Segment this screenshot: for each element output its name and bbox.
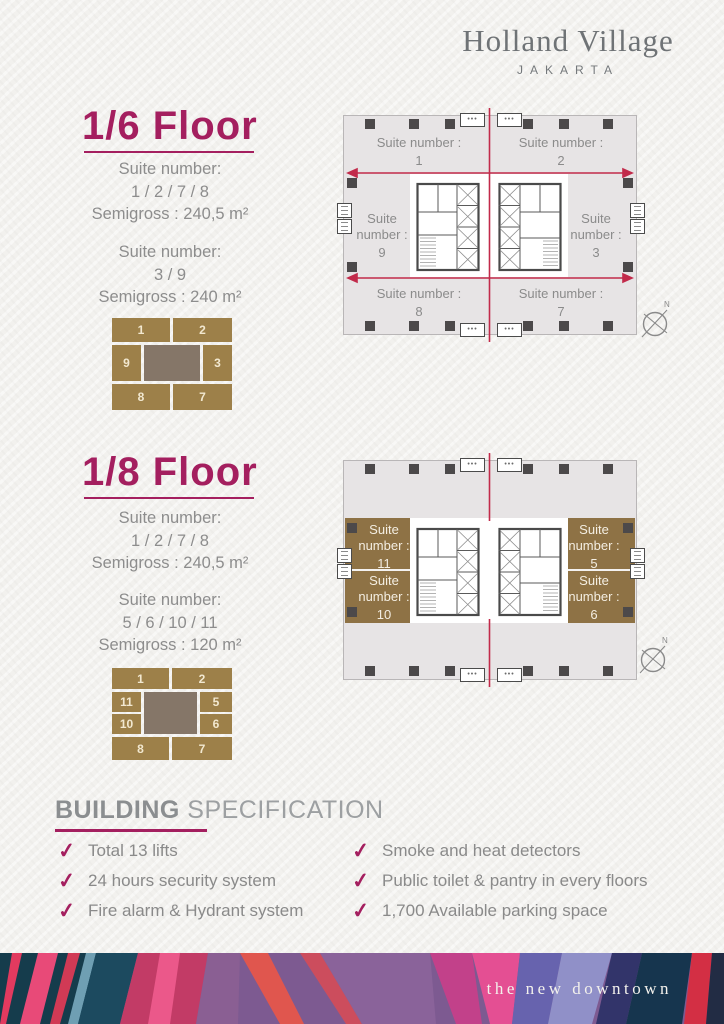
spec-item: Public toilet & pantry in every floors	[352, 871, 682, 901]
check-icon	[57, 869, 89, 892]
spec-item: Smoke and heat detectors	[352, 841, 682, 871]
spec-item: 1,700 Available parking space	[352, 901, 682, 931]
svg-text:N: N	[662, 636, 668, 645]
check-icon	[351, 899, 383, 922]
stack-cell: 1	[112, 318, 170, 342]
compass-north-icon: N	[634, 634, 674, 680]
suite-label-7: Suite number : 7	[496, 286, 626, 320]
floor-1-8-stack-diagram: 1 2 11 10 5 6 8 7	[112, 668, 232, 760]
footer-art-strip: the new downtown	[0, 953, 724, 1024]
suite-label: Suite number:	[50, 241, 290, 264]
brand-logo: Holland Village JAKARTA	[448, 24, 688, 77]
check-icon	[57, 899, 89, 922]
stack-cell: 8	[112, 737, 169, 760]
stack-core	[144, 345, 200, 381]
spec-item: 24 hours security system	[58, 871, 388, 901]
suite-label-11: Suite number : 11	[356, 522, 412, 572]
stack-cell: 10	[112, 714, 141, 734]
side-door-icon	[630, 564, 645, 579]
suite-label-1: Suite number : 1	[354, 135, 484, 169]
suite-label-6: Suite number : 6	[566, 573, 622, 623]
suite-semigross: Semigross : 240,5 m²	[50, 552, 290, 575]
suite-semigross: Semigross : 240 m²	[50, 286, 290, 309]
building-core-plan	[416, 526, 562, 618]
suite-label: Suite number:	[50, 589, 290, 612]
brand-city: JAKARTA	[448, 63, 688, 77]
floor-1-6-spec-1: Suite number: 1 / 2 / 7 / 8 Semigross : …	[50, 158, 290, 226]
suite-numbers: 1 / 2 / 7 / 8	[50, 530, 290, 553]
floor-1-8-title: 1/8 Floor	[50, 450, 322, 495]
stack-cell: 2	[173, 318, 232, 342]
brand-name: Holland Village	[448, 24, 688, 58]
suite-numbers: 5 / 6 / 10 / 11	[50, 612, 290, 635]
suite-label: Suite number:	[50, 507, 290, 530]
suite-label-10: Suite number : 10	[356, 573, 412, 623]
footer-tagline: the new downtown	[487, 979, 672, 999]
floor-1-8-spec-2: Suite number: 5 / 6 / 10 / 11 Semigross …	[50, 589, 290, 657]
building-spec-rule	[55, 829, 207, 832]
stack-core	[144, 692, 197, 734]
stack-cell: 1	[112, 668, 169, 689]
suite-semigross: Semigross : 240,5 m²	[50, 203, 290, 226]
suite-label-8: Suite number : 8	[354, 286, 484, 320]
side-door-icon	[630, 203, 645, 218]
entrance-bottom-left	[460, 323, 485, 337]
building-core-plan	[416, 181, 562, 273]
check-icon	[351, 839, 383, 862]
stack-cell: 7	[172, 737, 232, 760]
floor-1-6-plan: Suite number : 1 Suite number : 2 Suite …	[343, 115, 637, 335]
compass-north-icon: N	[636, 298, 676, 344]
stack-cell: 5	[200, 692, 232, 712]
stack-cell: 2	[172, 668, 232, 689]
suite-numbers: 1 / 2 / 7 / 8	[50, 181, 290, 204]
floor-1-8-title-rule	[84, 497, 254, 499]
entrance-bottom-right	[497, 668, 522, 682]
entrance-top-right	[497, 458, 522, 472]
stack-cell: 9	[112, 345, 141, 381]
entrance-top-left	[460, 458, 485, 472]
stack-cell: 8	[112, 384, 170, 410]
floor-1-6-title: 1/6 Floor	[50, 104, 322, 149]
stack-cell: 6	[200, 714, 232, 734]
suite-semigross: Semigross : 120 m²	[50, 634, 290, 657]
suite-label-9: Suite number : 9	[354, 211, 410, 261]
building-spec-title-bold: BUILDING	[55, 796, 180, 824]
check-icon	[57, 839, 89, 862]
floor-1-6-title-rule	[84, 151, 254, 153]
suite-label-2: Suite number : 2	[496, 135, 626, 169]
side-door-icon	[630, 548, 645, 563]
spec-item: Total 13 lifts	[58, 841, 388, 871]
suite-label: Suite number:	[50, 158, 290, 181]
side-door-icon	[630, 219, 645, 234]
spec-item: Fire alarm & Hydrant system	[58, 901, 388, 931]
floor-1-8-plan: Suite number : 11 Suite number : 5 Suite…	[343, 460, 637, 680]
entrance-top-right	[497, 113, 522, 127]
suite-label-5: Suite number : 5	[566, 522, 622, 572]
svg-text:N: N	[664, 300, 670, 309]
entrance-bottom-left	[460, 668, 485, 682]
suite-label-3: Suite number : 3	[568, 211, 624, 261]
stack-cell: 11	[112, 692, 141, 712]
building-spec-title-light: SPECIFICATION	[180, 796, 384, 824]
stack-cell: 3	[203, 345, 232, 381]
side-door-icon	[337, 203, 352, 218]
building-spec-title: BUILDING SPECIFICATION	[55, 796, 384, 825]
side-door-icon	[337, 219, 352, 234]
floor-1-6-spec-2: Suite number: 3 / 9 Semigross : 240 m²	[50, 241, 290, 309]
entrance-top-left	[460, 113, 485, 127]
side-door-icon	[337, 548, 352, 563]
stack-cell: 7	[173, 384, 232, 410]
brochure-page: Holland Village JAKARTA 1/6 Floor Suite …	[0, 0, 724, 1024]
spec-list-right: Smoke and heat detectors Public toilet &…	[352, 841, 682, 931]
floor-1-8-spec-1: Suite number: 1 / 2 / 7 / 8 Semigross : …	[50, 507, 290, 575]
floor-1-6-stack-diagram: 1 2 9 3 8 7	[112, 318, 232, 410]
check-icon	[351, 869, 383, 892]
spec-list-left: Total 13 lifts 24 hours security system …	[58, 841, 388, 931]
entrance-bottom-right	[497, 323, 522, 337]
side-door-icon	[337, 564, 352, 579]
suite-numbers: 3 / 9	[50, 264, 290, 287]
